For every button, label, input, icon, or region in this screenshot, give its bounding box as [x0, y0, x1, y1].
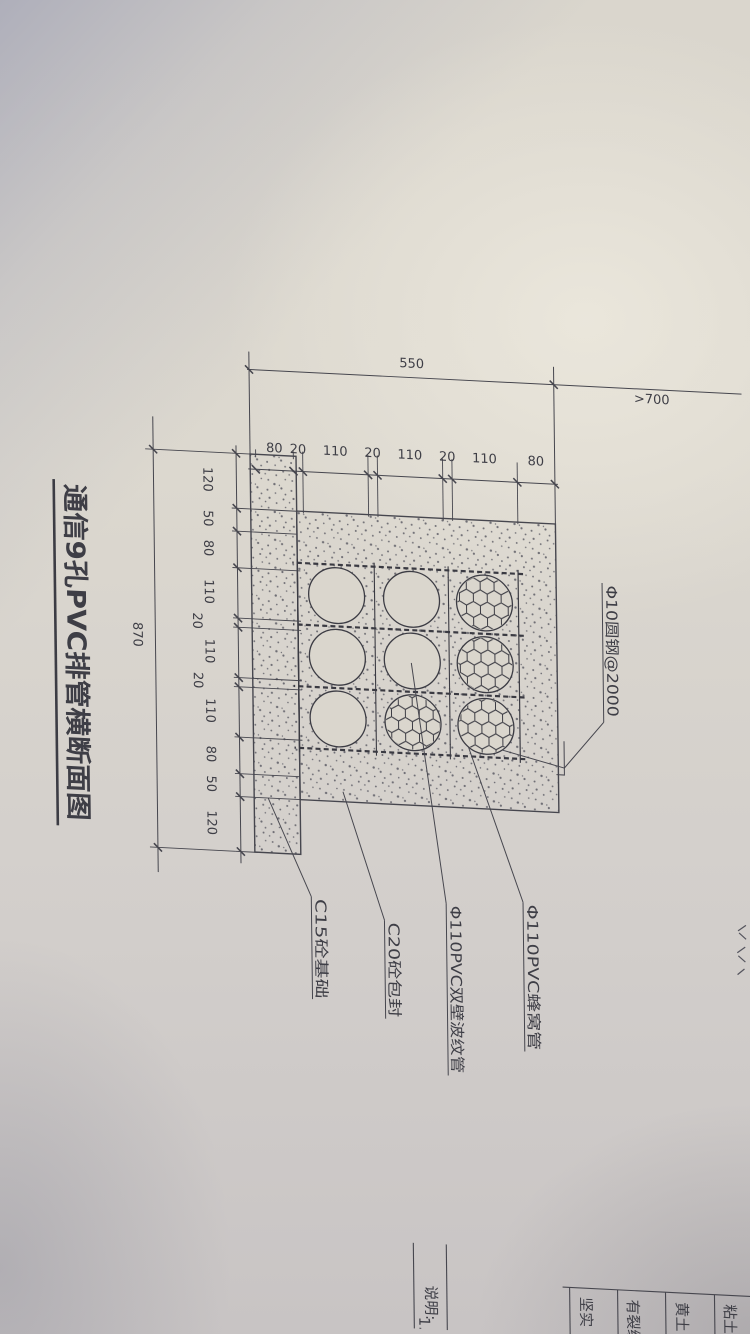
notes-block: 说明: 1. — [413, 1243, 447, 1334]
dim-base-total: 870 — [129, 622, 144, 647]
svg-text:20: 20 — [189, 612, 204, 629]
svg-text:20: 20 — [290, 442, 307, 458]
svg-text:110: 110 — [202, 698, 217, 723]
svg-text:110: 110 — [323, 444, 348, 460]
svg-text:20: 20 — [439, 450, 456, 466]
svg-text:50: 50 — [203, 775, 218, 792]
notes-item: 1. — [415, 1316, 433, 1331]
duct-bank-cross-section: >700 550 80 — [0, 0, 750, 1334]
pipes — [308, 566, 514, 755]
svg-text:80: 80 — [528, 454, 545, 470]
svg-text:80: 80 — [200, 539, 215, 556]
svg-text:50: 50 — [200, 510, 215, 527]
chain-870-numbers: 120 50 80 110 20 110 20 110 80 50 120 — [187, 466, 218, 835]
drawing-sheet: >700 550 80 — [0, 0, 750, 1334]
svg-text:120: 120 — [203, 810, 218, 835]
title-text: 通信9孔PVC排管横断面图 — [59, 483, 94, 821]
notes-heading: 说明: — [422, 1285, 440, 1321]
label-rebar: Φ10圆钢@2000 — [602, 585, 622, 717]
svg-text:110: 110 — [472, 451, 497, 467]
chain-550-numbers: 80 20 110 20 110 20 110 80 — [266, 441, 544, 470]
svg-text:120: 120 — [199, 467, 214, 492]
table-row: 坚实 — [577, 1297, 595, 1328]
edge-text-fragment — [737, 925, 747, 975]
c15-foundation-band — [250, 454, 301, 854]
svg-text:80: 80 — [203, 745, 218, 762]
table-row: 粘土 — [721, 1304, 739, 1334]
dim-cover-depth: >700 — [634, 392, 670, 409]
svg-text:110: 110 — [201, 579, 216, 604]
svg-text:80: 80 — [266, 441, 283, 457]
label-encasement: C20砼包封 — [384, 922, 403, 1017]
dim-section-total: 550 — [399, 356, 424, 372]
label-foundation: C15砼基础 — [311, 899, 330, 999]
table-row: 有裂缝 — [624, 1299, 643, 1334]
photo-of-drawing: >700 550 80 — [0, 0, 750, 1334]
svg-text:20: 20 — [190, 672, 205, 689]
label-corrugated-pipe: Φ110PVC双壁波纹管 — [446, 905, 466, 1073]
dimension-550-700 — [245, 351, 743, 535]
figure-title: 通信9孔PVC排管横断面图 — [54, 479, 94, 827]
svg-text:110: 110 — [397, 447, 422, 463]
label-honeycomb-pipe: Φ110PVC蜂窝管 — [523, 904, 543, 1050]
svg-text:20: 20 — [364, 446, 381, 462]
svg-text:110: 110 — [201, 638, 216, 663]
table-row: 黄土 — [673, 1302, 691, 1333]
